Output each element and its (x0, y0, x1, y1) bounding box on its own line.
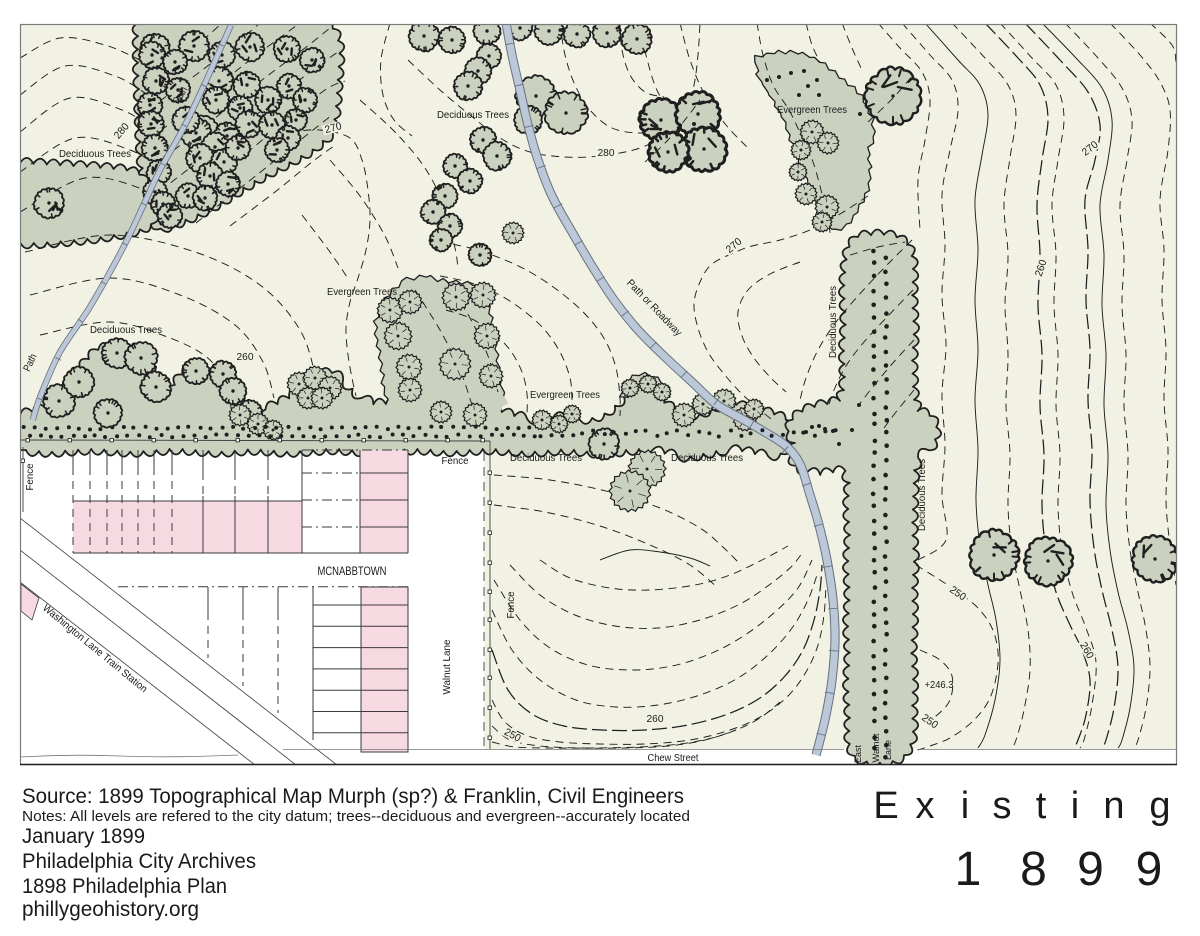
svg-text:9: 9 (1077, 843, 1104, 896)
svg-text:Notes: All levels are refered: Notes: All levels are refered to the cit… (22, 808, 690, 825)
svg-text:1898 Philadelphia Plan: 1898 Philadelphia Plan (22, 875, 227, 898)
svg-text:East: East (853, 745, 864, 763)
svg-text:Source: 1899 Topographical Map: Source: 1899 Topographical Map Murph (sp… (22, 785, 684, 808)
svg-text:January 1899: January 1899 (22, 825, 145, 848)
svg-text:MCNABBTOWN: MCNABBTOWN (318, 566, 387, 578)
svg-text:i: i (961, 785, 969, 827)
svg-text:280: 280 (598, 147, 615, 159)
svg-text:t: t (1036, 785, 1047, 827)
svg-text:Deciduous Trees: Deciduous Trees (916, 459, 928, 531)
svg-text:n: n (1103, 785, 1124, 827)
svg-text:Walnut Lane: Walnut Lane (441, 639, 453, 694)
svg-text:i: i (1071, 785, 1079, 827)
svg-text:260: 260 (647, 713, 664, 725)
svg-text:Deciduous Trees: Deciduous Trees (437, 109, 509, 121)
svg-text:Chew Street: Chew Street (648, 752, 699, 764)
svg-text:Deciduous Trees: Deciduous Trees (90, 324, 162, 336)
svg-text:9: 9 (1136, 843, 1163, 896)
svg-text:Deciduous Trees: Deciduous Trees (510, 452, 582, 464)
svg-text:E: E (873, 785, 898, 827)
svg-text:8: 8 (1020, 843, 1047, 896)
svg-text:phillygeohistory.org: phillygeohistory.org (22, 898, 199, 921)
svg-text:Deciduous Trees: Deciduous Trees (671, 452, 743, 464)
svg-text:Fence: Fence (505, 591, 517, 618)
svg-text:Evergreen Trees: Evergreen Trees (327, 286, 397, 298)
svg-text:Fence: Fence (24, 463, 36, 490)
svg-text:g: g (1149, 785, 1170, 827)
svg-text:1: 1 (955, 843, 982, 896)
svg-text:Fence: Fence (442, 455, 469, 467)
svg-text:Evergreen Trees: Evergreen Trees (530, 389, 600, 401)
svg-text:Philadelphia City Archives: Philadelphia City Archives (22, 850, 256, 873)
svg-text:Walnut: Walnut (871, 733, 882, 762)
svg-text:s: s (993, 785, 1012, 827)
svg-text:Deciduous Trees: Deciduous Trees (59, 148, 131, 160)
svg-text:Lane: Lane (883, 740, 894, 760)
svg-text:+246.3: +246.3 (925, 679, 954, 691)
svg-text:x: x (916, 785, 935, 827)
svg-text:Evergreen Trees: Evergreen Trees (777, 104, 847, 116)
svg-text:Deciduous Trees: Deciduous Trees (827, 286, 839, 358)
svg-text:260: 260 (237, 351, 254, 363)
